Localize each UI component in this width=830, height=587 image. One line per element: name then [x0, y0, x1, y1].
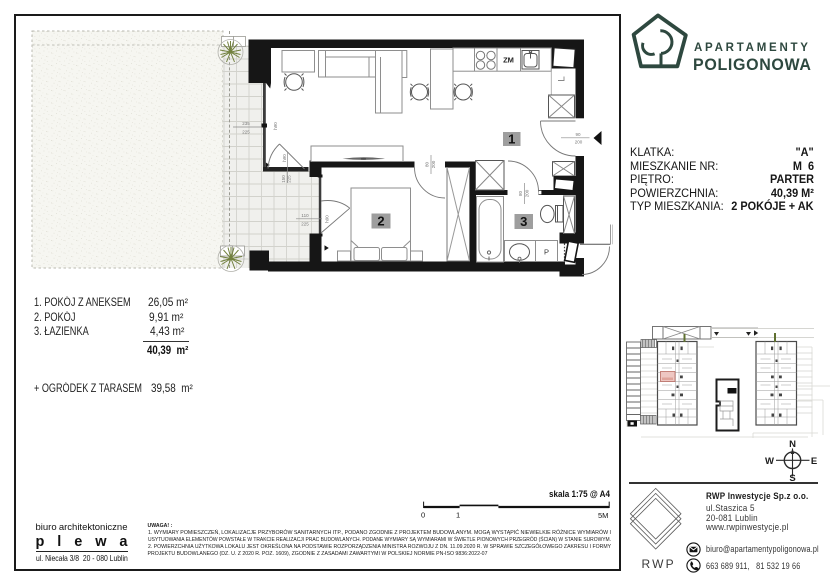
svg-text:225: 225	[242, 130, 250, 135]
svg-text:235: 235	[242, 121, 250, 126]
svg-text:3: 3	[520, 214, 527, 229]
svg-text:0: 0	[421, 511, 425, 520]
svg-text:h90: h90	[273, 122, 278, 130]
svg-text:N: N	[789, 439, 796, 450]
svg-text:150: 150	[281, 175, 286, 183]
svg-text:5M: 5M	[598, 511, 608, 520]
svg-text:200: 200	[525, 189, 530, 197]
svg-text:E: E	[811, 456, 817, 467]
svg-text:225: 225	[301, 222, 309, 227]
svg-text:h90: h90	[325, 215, 330, 223]
svg-text:110: 110	[301, 213, 309, 218]
svg-text:ZM: ZM	[503, 56, 514, 65]
svg-text:1: 1	[508, 132, 515, 147]
svg-text:2: 2	[377, 214, 384, 229]
svg-text:90: 90	[575, 132, 581, 137]
svg-text:80: 80	[518, 191, 523, 197]
svg-text:225: 225	[287, 175, 292, 183]
svg-text:200: 200	[431, 160, 436, 168]
svg-text:80: 80	[425, 162, 430, 168]
svg-text:200: 200	[575, 140, 583, 145]
svg-text:W: W	[765, 456, 774, 467]
svg-text:P: P	[544, 248, 549, 257]
svg-text:h90: h90	[282, 154, 287, 162]
svg-text:1: 1	[456, 511, 460, 520]
